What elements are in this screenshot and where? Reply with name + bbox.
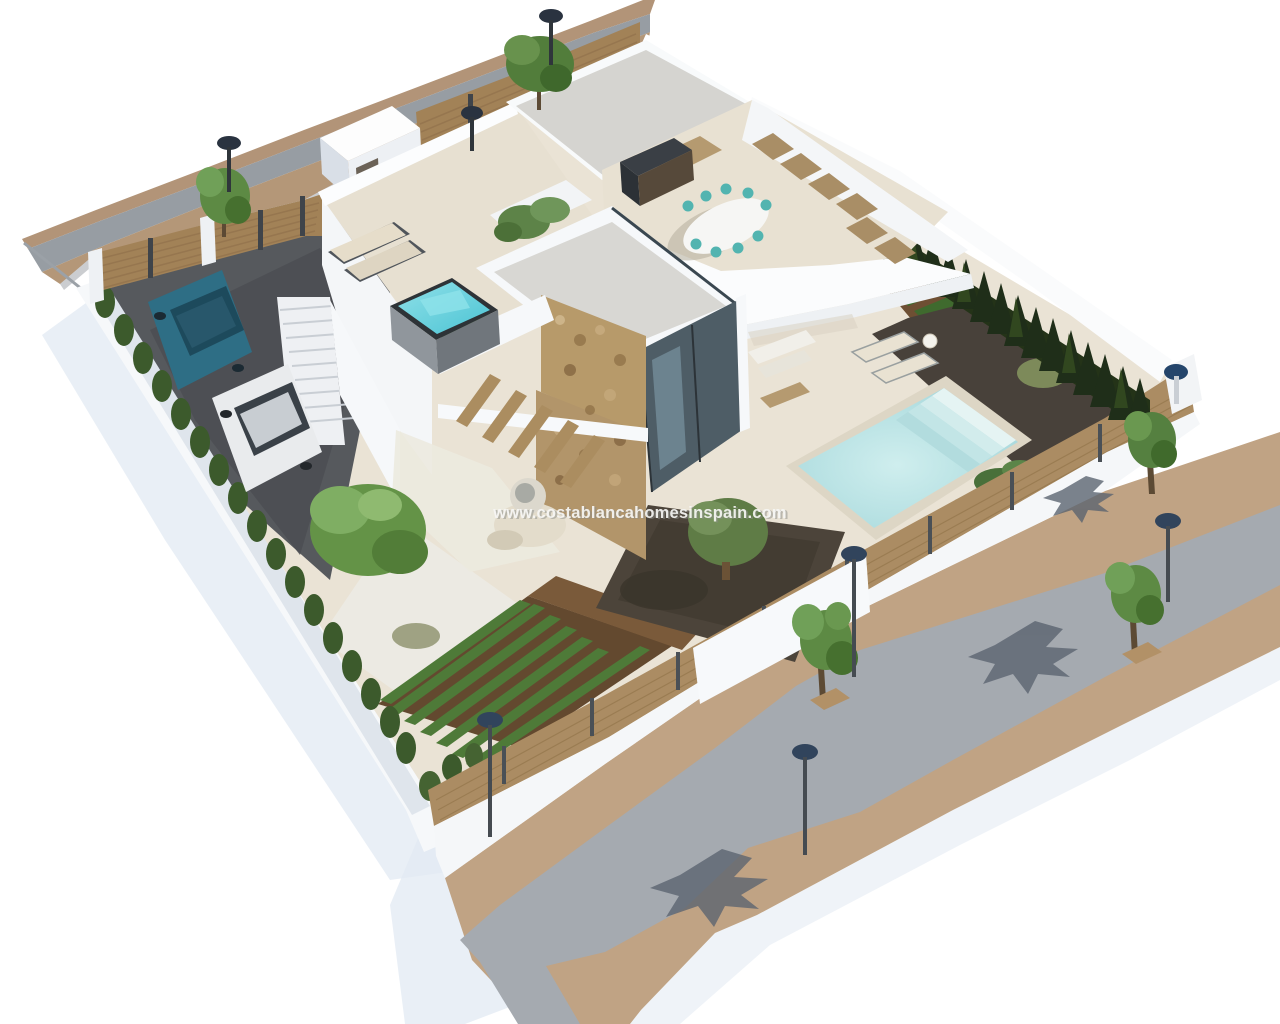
svg-text:www.costablancahomesinspain.co: www.costablancahomesinspain.com (492, 504, 787, 522)
